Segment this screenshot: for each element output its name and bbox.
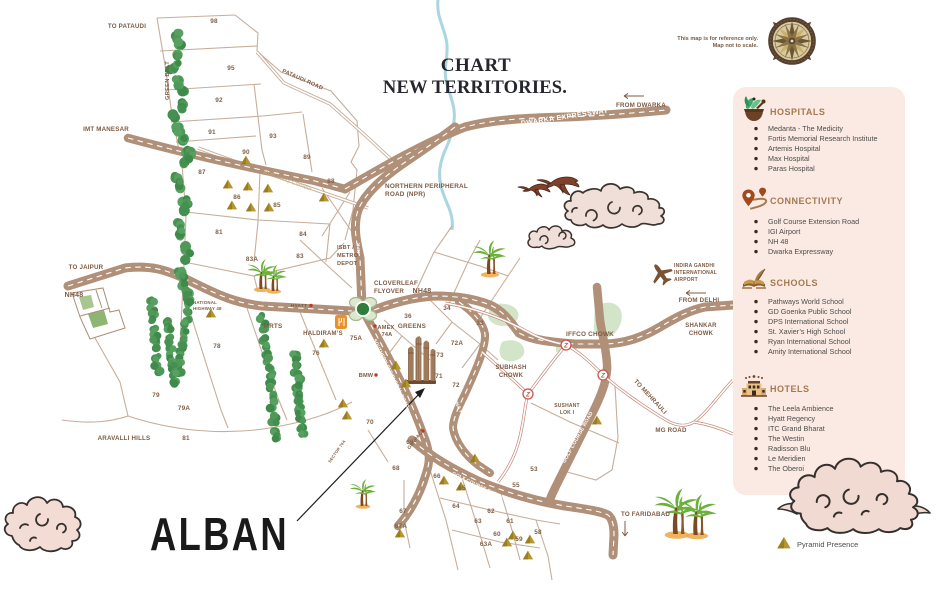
svg-text:FROM DWARKA: FROM DWARKA [616,102,666,109]
svg-text:70: 70 [366,419,374,426]
svg-text:Medanta - The Medicity: Medanta - The Medicity [768,124,843,133]
svg-text:78: 78 [213,343,221,350]
svg-text:91: 91 [208,129,216,136]
svg-text:88: 88 [327,178,335,185]
svg-text:GREEN BELT: GREEN BELT [165,61,171,100]
svg-text:83: 83 [296,253,304,260]
svg-text:NATIONAL: NATIONAL [193,300,217,305]
svg-text:NORTHERN PERIPHERAL: NORTHERN PERIPHERAL [385,183,468,190]
svg-text:33: 33 [476,320,484,327]
svg-text:72A: 72A [451,340,464,347]
svg-text:SUSHANT: SUSHANT [554,403,580,409]
svg-text:CHOWK: CHOWK [499,373,524,379]
svg-text:67: 67 [399,508,407,515]
svg-text:Amity International School: Amity International School [768,347,852,356]
svg-text:SUBHASH: SUBHASH [495,365,526,371]
svg-text:MRTS: MRTS [264,323,283,330]
svg-text:73: 73 [436,352,444,359]
svg-text:Ryan International School: Ryan International School [768,337,851,346]
svg-text:79: 79 [152,392,160,399]
svg-text:SCHOOLS: SCHOOLS [770,278,818,288]
svg-text:53: 53 [530,466,538,473]
svg-text:AMEX: AMEX [378,325,395,331]
svg-text:The Oberoi: The Oberoi [768,464,804,473]
svg-text:The Leela Ambience: The Leela Ambience [768,404,834,413]
svg-text:GD Goenka Public School: GD Goenka Public School [768,307,852,316]
svg-text:CONNECTIVITY: CONNECTIVITY [770,196,843,206]
svg-text:CHOWK: CHOWK [689,331,714,337]
svg-text:92: 92 [215,97,223,104]
svg-text:75A: 75A [350,335,363,342]
svg-text:76: 76 [312,350,320,357]
svg-text:90: 90 [242,149,250,156]
svg-text:86: 86 [233,194,241,201]
svg-text:LOK I: LOK I [560,410,575,416]
svg-text:HOTELS: HOTELS [770,384,810,394]
svg-text:65: 65 [458,485,466,492]
svg-text:Paras Hospital: Paras Hospital [768,164,815,173]
svg-text:MG ROAD: MG ROAD [655,427,687,434]
svg-text:69: 69 [406,439,414,446]
svg-text:CHART: CHART [441,55,511,76]
svg-text:Hyatt Regency: Hyatt Regency [768,414,816,423]
svg-text:55: 55 [512,482,520,489]
svg-text:FLYOVER: FLYOVER [374,288,404,295]
svg-text:34: 34 [443,305,451,312]
svg-text:ITC Grand Bharat: ITC Grand Bharat [768,424,825,433]
svg-text:ISBT /: ISBT / [337,245,354,251]
svg-text:HALDIRAM’S: HALDIRAM’S [303,331,343,337]
svg-text:63: 63 [474,518,482,525]
svg-text:79A: 79A [178,405,191,412]
svg-text:Map not to scale.: Map not to scale. [713,43,759,49]
svg-text:Radisson Blu: Radisson Blu [768,444,810,453]
svg-text:36: 36 [404,313,412,320]
svg-text:67A: 67A [395,523,408,530]
svg-text:IMT MANESAR: IMT MANESAR [83,126,129,133]
svg-text:ARAVALLI HILLS: ARAVALLI HILLS [98,435,151,442]
svg-text:83A: 83A [246,256,259,263]
svg-text:84: 84 [299,231,307,238]
svg-text:93: 93 [269,133,277,140]
svg-text:CLOVERLEAF: CLOVERLEAF [374,280,418,287]
svg-text:Golf Course Extension Road: Golf Course Extension Road [768,217,859,226]
svg-text:Pyramid Presence: Pyramid Presence [797,540,858,549]
svg-text:98: 98 [210,18,218,25]
svg-text:89: 89 [303,154,311,161]
svg-text:72: 72 [452,382,460,389]
svg-text:BMW: BMW [359,373,374,379]
svg-text:Le Meridien: Le Meridien [768,454,806,463]
svg-text:71: 71 [435,373,443,380]
svg-text:81: 81 [182,435,190,442]
svg-text:St. Xavier’s High School: St. Xavier’s High School [768,327,846,336]
svg-text:Pathways World School: Pathways World School [768,297,844,306]
svg-text:Max Hospital: Max Hospital [768,154,810,163]
svg-text:60: 60 [493,531,501,538]
svg-text:This map is for reference only: This map is for reference only. [677,36,758,42]
svg-text:64: 64 [452,503,460,510]
svg-text:81: 81 [215,229,223,236]
svg-text:IFFCO CHOWK: IFFCO CHOWK [566,331,614,338]
svg-text:87: 87 [198,169,206,176]
svg-text:The Westin: The Westin [768,434,804,443]
svg-text:DEPOT: DEPOT [337,261,358,267]
svg-text:SHANKAR: SHANKAR [685,323,717,329]
svg-text:NPR: NPR [356,242,361,253]
svg-text:63A: 63A [480,541,493,548]
svg-text:ROAD (NPR): ROAD (NPR) [385,191,425,198]
svg-text:TO FARIDABAD: TO FARIDABAD [621,511,670,518]
svg-text:HOSPITALS: HOSPITALS [770,107,825,117]
svg-text:NEW TERRITORIES.: NEW TERRITORIES. [383,78,567,98]
svg-text:NH48: NH48 [65,292,84,299]
svg-text:IGI Airport: IGI Airport [768,227,800,236]
svg-text:NH 48: NH 48 [768,237,788,246]
svg-text:AIRPORT: AIRPORT [674,277,698,283]
svg-text:NH48: NH48 [413,288,432,295]
svg-text:ALBAN: ALBAN [150,508,289,560]
svg-text:68: 68 [392,465,400,472]
svg-text:HIGHWAY 48: HIGHWAY 48 [193,306,222,311]
svg-text:58: 58 [534,529,542,536]
svg-text:TO PATAUDI: TO PATAUDI [108,23,146,30]
svg-text:62: 62 [487,508,495,515]
svg-text:FROM DELHI: FROM DELHI [679,297,720,304]
svg-text:Artemis Hospital: Artemis Hospital [768,144,821,153]
svg-text:INDIRA GANDHI: INDIRA GANDHI [674,263,715,269]
svg-text:DPS International School: DPS International School [768,317,849,326]
svg-text:85: 85 [273,202,281,209]
svg-text:95: 95 [227,65,235,72]
svg-text:INTERNATIONAL: INTERNATIONAL [674,270,717,276]
svg-text:74A: 74A [382,332,393,338]
svg-text:HYATT: HYATT [291,303,307,309]
svg-text:61: 61 [506,518,514,525]
svg-text:59: 59 [515,536,523,543]
svg-text:Fortis Memorial Research Insti: Fortis Memorial Research Institute [768,134,877,143]
svg-text:66: 66 [433,473,441,480]
svg-text:Dwarka Expressway: Dwarka Expressway [768,247,834,256]
svg-text:TO JAIPUR: TO JAIPUR [69,264,104,271]
svg-text:GREENS: GREENS [398,323,427,330]
